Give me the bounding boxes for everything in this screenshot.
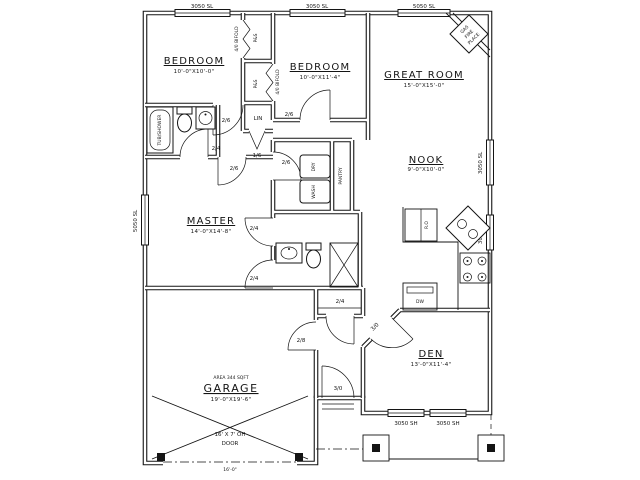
door-label-linen: 1/6 [253,153,262,159]
master-bath-fixtures [276,243,358,287]
garage-name: GARAGE [203,382,258,395]
pantry-label: PANTRY [338,167,344,184]
door-label-laundry: 2/6 [282,160,291,166]
door-front-entry: 3/0 [322,366,354,409]
floor-plan-drawing: 3050 SL 3050 SL 5050 SL 5050 SL 3050 SL … [0,0,640,480]
garage-door-jamb-left [157,453,165,461]
window-label-master: 5050 SL [133,209,139,232]
window-label-nook: 3050 SL [478,151,484,174]
door-label-coat-closet: 2/4 [336,299,345,305]
bedroom1-dims: 10'-0"X10'-0" [174,69,215,75]
door-bedroom2: 2/6 [285,90,330,120]
refrigerator-label: R.O [424,221,430,229]
garage-dims: 19'-0"X19'-6" [211,397,252,403]
bathroom-sink [196,107,215,129]
door-label-master: 2/6 [230,166,239,172]
door-master-bath-upper: 2/4 [245,218,273,246]
dishwasher: DW [403,283,437,310]
door-bathroom: 2/4 [180,129,221,157]
master-name: MASTER [187,216,235,227]
den-name: DEN [418,349,443,360]
window-label-bedroom2: 3050 SL [306,4,329,10]
window-den-2: 3050 SH [430,410,466,428]
window-bedroom2: 3050 SL [290,4,345,17]
bedroom1-name: BEDROOM [164,56,225,67]
master-dims: 14'-0"X14'-8" [191,229,232,235]
window-bedroom1: 3050 SL [175,4,230,17]
shower [330,243,358,287]
master-toilet [306,243,321,268]
great-room-name: GREAT ROOM [384,70,464,81]
closet1-door-label: 4/0 BIFOLD [234,26,240,52]
floor-plan-page: 3050 SL 3050 SL 5050 SL 5050 SL 3050 SL … [0,0,640,480]
window-nook: 3050 SL [478,140,494,185]
window-label-bedroom1: 3050 SL [191,4,214,10]
garage: 16' X 7' OH DOOR 16'-0" [152,396,308,473]
dishwasher-label: DW [416,299,424,305]
window-label-den-2: 3050 SH [436,421,459,427]
nook-dims: 9'-0"X10'-0" [408,167,445,173]
nook-name: NOOK [409,155,444,166]
door-label-den: 3/0 [370,322,381,333]
master-sink [276,243,302,263]
porch-post-right-core [487,444,495,452]
den-dims: 13'-0"X11'-4" [411,362,452,368]
door-garage-entry: 2/8 [288,322,316,350]
great-room-dims: 15'-0"X15'-0" [404,83,445,89]
kitchen: R.O DW [403,206,490,310]
closet1-shelf-label: P&S [253,33,259,42]
refrigerator-space: R.O [405,209,437,241]
linen-closet-label: LIN [254,116,263,122]
door-den: 3/0 [370,318,413,348]
door-laundry: 2/6 [273,152,301,180]
porch-post-left-core [372,444,380,452]
door-label-bedroom1: 2/6 [222,118,231,124]
door-label-master-bath-lower: 2/4 [250,276,259,282]
fireplace: GAS FIRE PLACE [446,13,490,57]
washer-label: WASH [311,185,317,199]
window-master: 5050 SL [133,195,149,245]
range [460,253,490,283]
bedroom2-name: BEDROOM [290,62,351,73]
door-coat-closet: 2/4 [318,299,361,344]
bathtub-label: TUB/SHOWER [157,115,163,147]
door-label-bedroom2: 2/6 [285,112,294,118]
garage-door-dim: 16'-0" [223,467,237,473]
window-label-den-1: 3050 SH [394,421,417,427]
bifold-door-closet1 [243,20,250,58]
door-master: 2/6 [218,157,246,185]
dryer-label: DRY [311,162,317,171]
toilet [177,107,192,132]
garage-door-opening [163,458,297,467]
laundry-fixtures: DRY WASH PANTRY [300,155,344,203]
closet2-shelf-label: P&S [253,79,259,88]
bifold-door-closet2 [266,64,273,101]
closet2-door-label: 4/0 BIFOLD [275,69,281,95]
garage-door-word: DOOR [222,441,239,447]
bathroom-fixtures: TUB/SHOWER [147,107,215,153]
window-den-1: 3050 SH [388,410,424,428]
garage-door-size: 16' X 7' OH [215,432,246,438]
door-master-bath-lower: 2/4 [245,260,273,288]
window-label-great-room: 5050 SL [413,4,436,10]
bedroom2-dims: 10'-0"X11'-4" [300,75,341,81]
door-label-garage-entry: 2/8 [297,338,306,344]
door-label-front-entry: 3/0 [334,386,343,392]
garage-door-jamb-right [295,453,303,461]
counter-edge [403,207,458,310]
garage-area: AREA 344 SQFT [213,375,248,381]
window-great-room: 5050 SL [398,4,450,17]
door-label-master-bath-upper: 2/4 [250,226,259,232]
door-label-bathroom: 2/4 [212,146,221,152]
